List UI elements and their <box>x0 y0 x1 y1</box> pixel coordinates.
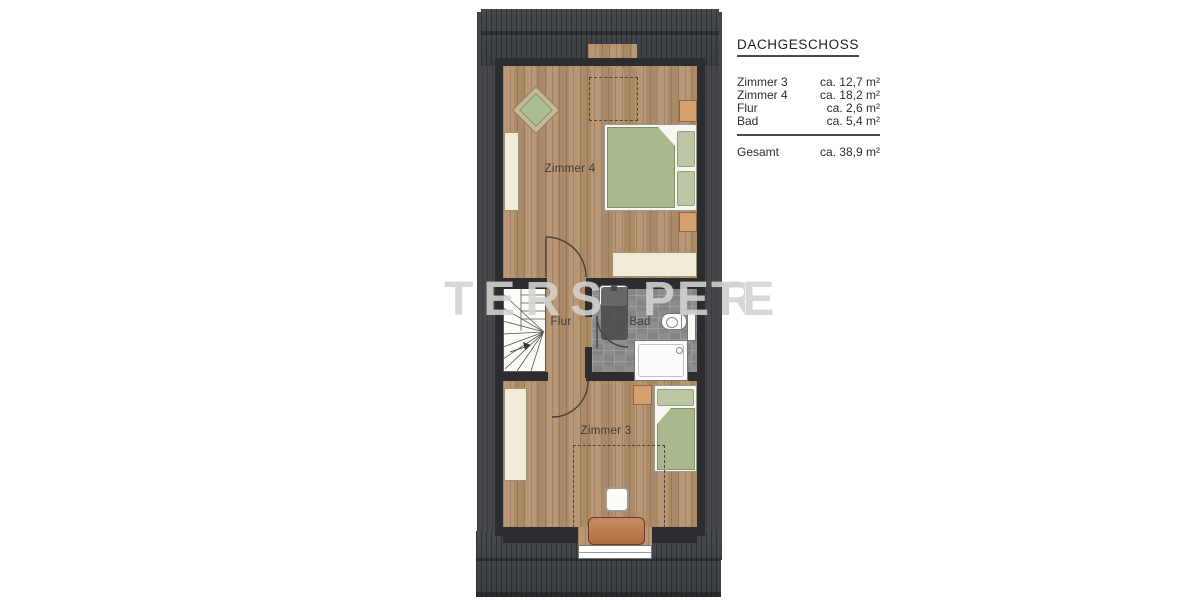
legend-panel: DACHGESCHOSS Zimmer 3 ca. 12,7 m² Zimmer… <box>737 36 880 159</box>
floor-plan-page: TERS PETE R Zimmer 4 Flur Bad Zimmer 3 D… <box>0 0 1200 600</box>
legend-total-row: Gesamt ca. 38,9 m² <box>737 145 880 159</box>
legend-value: ca. 2,6 m² <box>827 102 880 115</box>
wall-top <box>495 58 705 66</box>
roof-edge-bottom <box>476 592 721 597</box>
legend-row-bad: Bad ca. 5,4 m² <box>737 115 880 128</box>
legend-divider <box>737 134 880 136</box>
pillow-bottom <box>677 171 695 206</box>
watermark-tail-glyph: R <box>719 273 745 326</box>
desk <box>588 517 645 545</box>
legend-label: Flur <box>737 102 758 115</box>
shower <box>634 340 688 381</box>
wall-stairs-z3 <box>503 372 548 381</box>
legend-label: Zimmer 4 <box>737 89 788 102</box>
legend-value: ca. 18,2 m² <box>820 89 880 102</box>
nightstand-top <box>679 100 697 122</box>
wall-bottom-left <box>503 527 578 543</box>
wardrobe-zimmer4 <box>504 132 519 211</box>
label-bad: Bad <box>620 316 660 328</box>
watermark-right-text: PETE <box>643 272 776 328</box>
desk-chair <box>605 487 629 512</box>
legend-title: DACHGESCHOSS <box>737 37 859 57</box>
legend-total-label: Gesamt <box>737 145 779 159</box>
label-flur: Flur <box>541 316 581 328</box>
window-bottom <box>578 545 652 559</box>
wall-bottom-right <box>652 527 697 543</box>
legend-value: ca. 12,7 m² <box>820 76 880 89</box>
shower-drain <box>676 347 683 354</box>
legend-label: Bad <box>737 115 758 128</box>
legend-total-value: ca. 38,9 m² <box>820 145 880 159</box>
legend-row-zimmer4: Zimmer 4 ca. 18,2 m² <box>737 89 880 102</box>
watermark-clipped-letter: R <box>719 272 745 332</box>
nightstand-zimmer3 <box>633 385 652 405</box>
label-zimmer3: Zimmer 3 <box>569 425 643 437</box>
wardrobe-zimmer3 <box>504 388 527 481</box>
watermark-left-text: TERS <box>444 272 612 328</box>
nightstand-bottom <box>679 212 697 232</box>
pillow-top <box>677 131 695 167</box>
legend-value: ca. 5,4 m² <box>827 115 880 128</box>
dormer-outline-zimmer4 <box>589 77 638 121</box>
window-glass-line <box>579 552 651 553</box>
legend-label: Zimmer 3 <box>737 76 788 89</box>
legend-row-zimmer3: Zimmer 3 ca. 12,7 m² <box>737 76 880 89</box>
watermark-logo-block <box>601 287 628 340</box>
armchair-cushion <box>519 93 553 127</box>
label-zimmer4: Zimmer 4 <box>533 163 607 175</box>
double-bed-duvet <box>607 127 675 208</box>
legend-row-flur: Flur ca. 2,6 m² <box>737 102 880 115</box>
roof-eave-line-top <box>481 31 719 35</box>
single-bed-pillow <box>657 389 694 406</box>
legend-rows: Zimmer 3 ca. 12,7 m² Zimmer 4 ca. 18,2 m… <box>737 76 880 128</box>
